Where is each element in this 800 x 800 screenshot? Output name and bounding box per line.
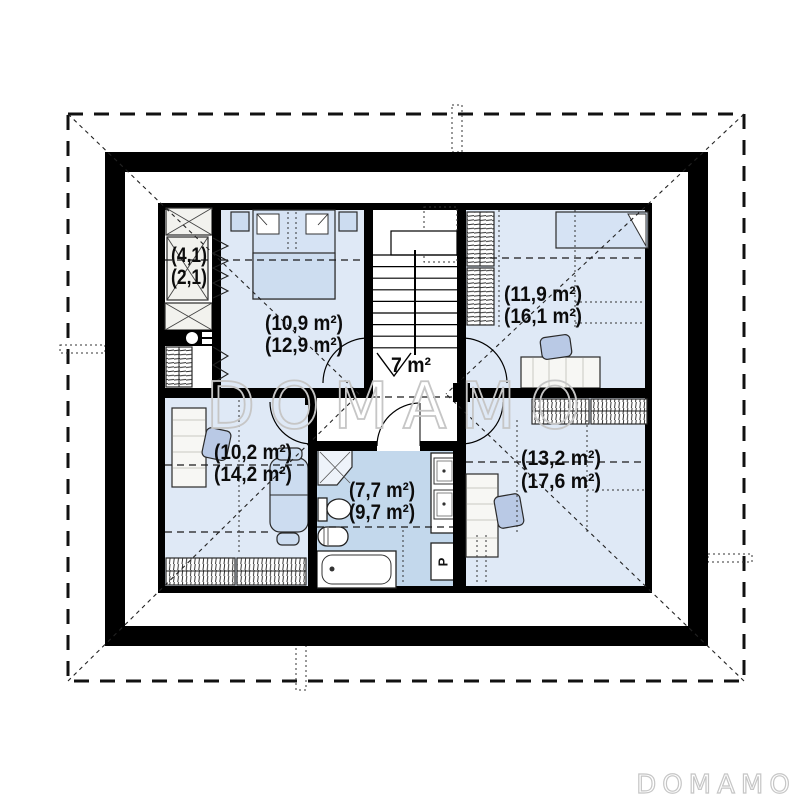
bathroom-area-line2: (9,7 m²) bbox=[349, 501, 415, 524]
bathroom-right-wall bbox=[453, 443, 465, 593]
roof-marker-top bbox=[452, 105, 462, 152]
hall-right-wall bbox=[457, 210, 466, 338]
nightstand bbox=[339, 212, 357, 231]
nightstand bbox=[231, 212, 249, 231]
toilet-tank bbox=[318, 498, 327, 521]
bedroom-tr-area-line1: (11,9 m²) bbox=[504, 283, 582, 306]
bathtub-drain bbox=[330, 567, 335, 572]
counter-detail bbox=[202, 339, 212, 344]
room-br-area-line2: (17,6 m²) bbox=[521, 470, 601, 493]
chair bbox=[540, 334, 573, 360]
washing-machine-label: P bbox=[435, 557, 450, 566]
bathtub bbox=[317, 551, 396, 588]
room-br-area-line1: (13,2 m²) bbox=[521, 447, 601, 470]
room-bl-area-line2: (14,2 m²) bbox=[214, 463, 292, 486]
hall-left-wall bbox=[364, 210, 373, 338]
bidet bbox=[318, 527, 348, 546]
watermark-center: DOMAMO bbox=[206, 370, 594, 444]
washbasin-drain bbox=[442, 502, 445, 505]
floor-plan-drawing: P bbox=[0, 0, 800, 800]
roof-marker-bottom bbox=[296, 645, 306, 690]
closet-wall bbox=[212, 210, 221, 238]
counter-detail bbox=[202, 332, 212, 337]
desk bbox=[466, 474, 498, 557]
watermark-logo: DOMAMO bbox=[636, 770, 796, 800]
bathroom-left-wall bbox=[308, 443, 317, 593]
stair-landing bbox=[391, 231, 457, 255]
pouf bbox=[277, 533, 299, 545]
floor-plan-page: P bbox=[0, 0, 800, 800]
room-bl-area-line1: (10,2 m²) bbox=[214, 441, 292, 464]
bathroom-area-line1: (7,7 m²) bbox=[349, 479, 415, 502]
closet-area-line1: (4,1) bbox=[171, 244, 207, 267]
bedroom-tl-area-line2: (12,9 m²) bbox=[265, 334, 343, 357]
chair bbox=[493, 493, 524, 529]
closet-wall bbox=[212, 298, 221, 347]
closet-area-line2: (2,1) bbox=[171, 266, 207, 289]
washbasin-drain bbox=[442, 469, 445, 472]
bedroom-tr-area-line2: (16,1 m²) bbox=[504, 305, 582, 328]
bedroom-tl-area-line1: (10,9 m²) bbox=[265, 312, 343, 335]
sink-basin bbox=[186, 332, 198, 344]
toilet-bowl bbox=[327, 499, 351, 519]
